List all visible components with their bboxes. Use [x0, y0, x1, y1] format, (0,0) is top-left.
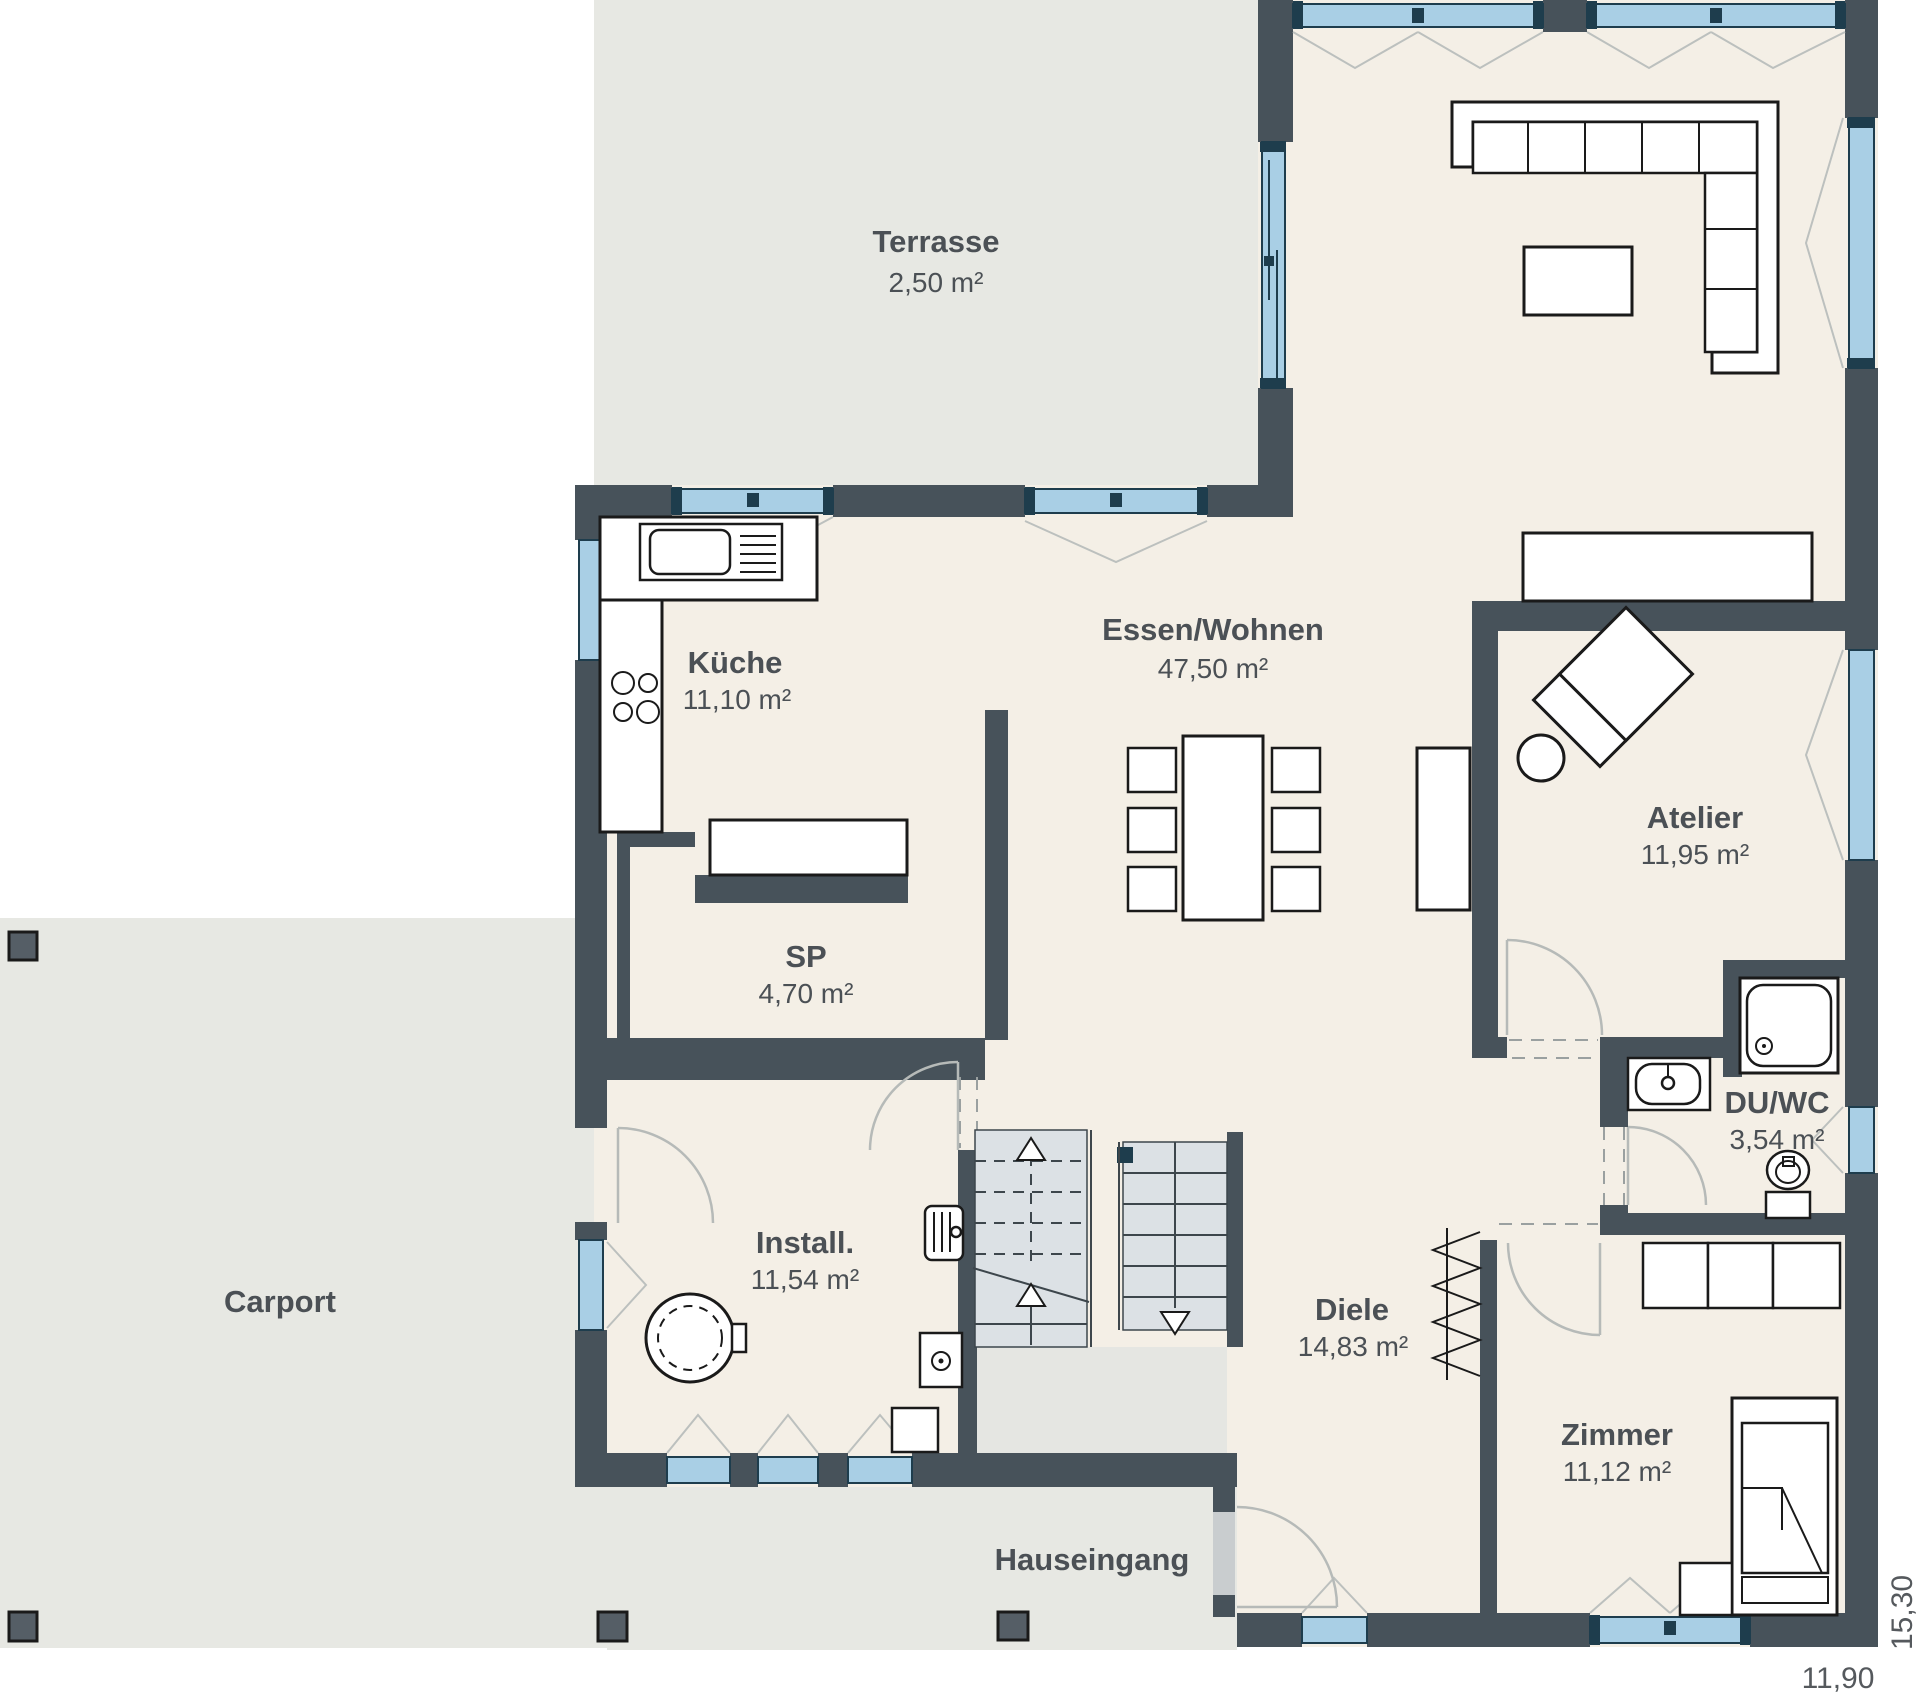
dining-table [1183, 736, 1263, 920]
small-box [892, 1408, 938, 1452]
room-area: 11,95 m² [1641, 839, 1749, 870]
room-name: Terrasse [873, 224, 1000, 259]
washbasin [1628, 1058, 1710, 1110]
room-name: Atelier [1647, 800, 1743, 835]
room-area: 11,12 m² [1563, 1456, 1671, 1487]
room-area: 4,70 m² [759, 978, 854, 1009]
desk-chair [1518, 735, 1564, 781]
room-name: Küche [688, 645, 783, 680]
kitchen-sink [640, 524, 782, 580]
stairs-up [973, 1130, 1089, 1347]
room-area: 3,54 m² [1730, 1124, 1825, 1155]
carport-area [0, 918, 607, 1648]
coffee-table [1524, 247, 1632, 315]
room-name: Essen/Wohnen [1102, 612, 1324, 647]
room-name: DU/WC [1724, 1085, 1829, 1120]
room-name: Zimmer [1561, 1417, 1673, 1452]
room-area: 14,83 m² [1298, 1331, 1409, 1362]
sideboard-dining [1417, 748, 1470, 910]
floorplan-drawing: Terrasse 2,50 m² Küche 11,10 m² Essen/Wo… [0, 0, 1920, 1697]
room-area: 2,50 m² [889, 267, 984, 298]
room-name: Hauseingang [995, 1542, 1190, 1577]
nightstand [1680, 1563, 1732, 1615]
heating-unit [925, 1206, 963, 1260]
toilet [1766, 1151, 1810, 1218]
shower [1740, 978, 1838, 1073]
stairs-down [1117, 1142, 1227, 1334]
wardrobe [1643, 1243, 1840, 1308]
dimension-width: 11,90 [1802, 1662, 1875, 1695]
room-name: Diele [1315, 1292, 1389, 1327]
floorplan-page: Terrasse 2,50 m² Küche 11,10 m² Essen/Wo… [0, 0, 1920, 1697]
room-name: SP [785, 939, 826, 974]
room-area: 11,10 m² [683, 684, 791, 715]
room-name: Install. [756, 1225, 854, 1260]
sideboard-living [1523, 533, 1812, 601]
bed [1732, 1398, 1837, 1615]
floor-unit [920, 1333, 962, 1387]
room-area: 47,50 m² [1158, 653, 1269, 684]
room-label-hauseingang: Hauseingang [995, 1542, 1190, 1577]
room-name: Carport [224, 1284, 336, 1319]
dimension-height: 15,30 [1886, 1575, 1919, 1650]
entrance-sidelight [1213, 1487, 1235, 1617]
room-label-carport: Carport [224, 1284, 336, 1319]
room-area: 11,54 m² [751, 1264, 859, 1295]
